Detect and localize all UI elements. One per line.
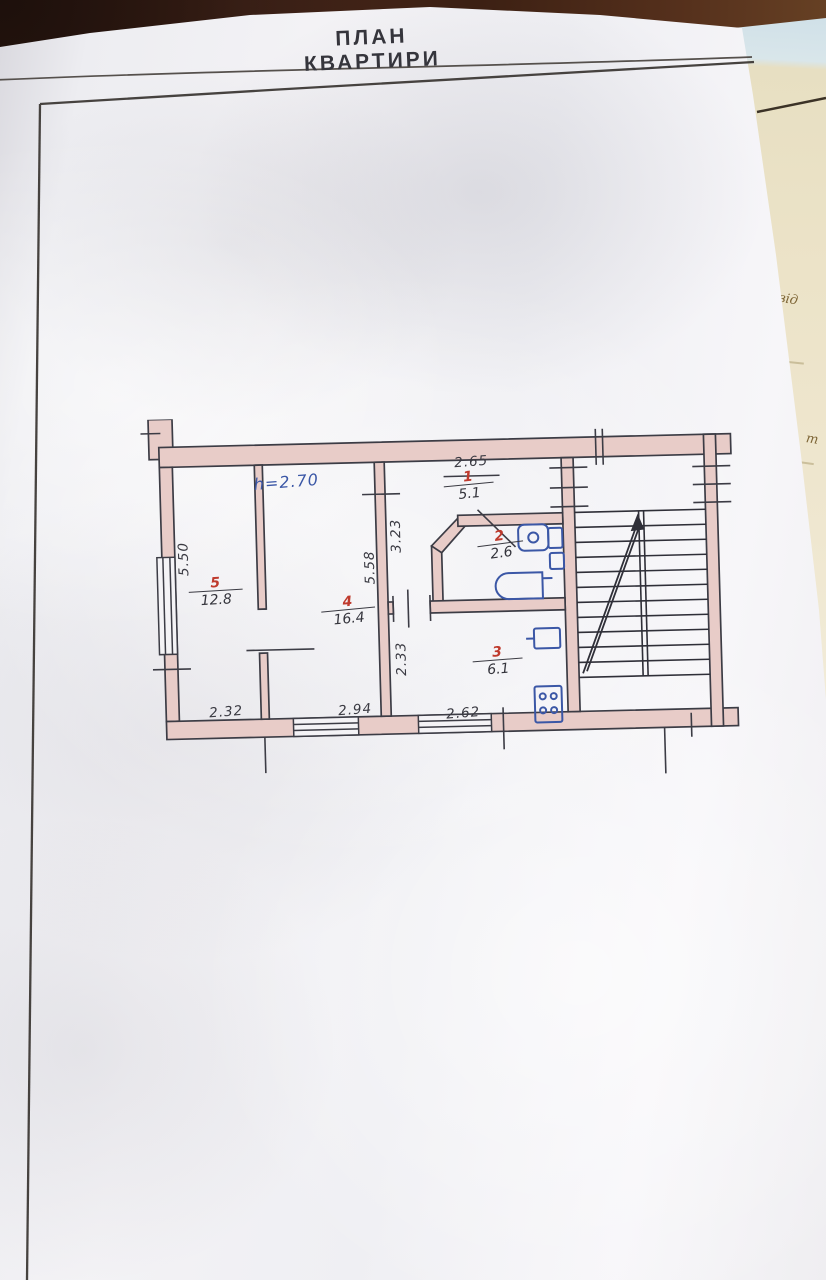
toilet-tank-fixture bbox=[550, 553, 564, 569]
tick-kitchen-door-mid bbox=[408, 590, 409, 628]
bathroom-left-wall bbox=[432, 546, 444, 603]
stove-burner-icon bbox=[540, 693, 546, 699]
stove-burner-icon bbox=[551, 707, 557, 713]
wall-room5-room4-lower bbox=[260, 653, 270, 719]
left-window bbox=[157, 557, 178, 654]
room-4-label: 4 16.4 bbox=[320, 593, 377, 631]
page-title: ПЛАН КВАРТИРИ bbox=[261, 21, 483, 78]
room-5-label: 5 12.8 bbox=[188, 575, 244, 611]
dim-kitchen-depth: 2.33 bbox=[393, 629, 411, 689]
tick-top-wall bbox=[602, 429, 603, 465]
tick-right-wall bbox=[693, 484, 731, 485]
tick-right-wall bbox=[693, 502, 731, 503]
dim-room4-depth: 5.58 bbox=[361, 537, 379, 597]
tick-room5-door bbox=[246, 649, 314, 651]
tick-kitchen-door bbox=[430, 595, 431, 621]
bathtub-fixture bbox=[495, 572, 543, 599]
room-1-label: 1 5.1 bbox=[442, 468, 495, 506]
tick-entry-wall bbox=[550, 506, 588, 507]
tick-bottom-wall bbox=[691, 713, 692, 737]
document-frame-left bbox=[27, 104, 40, 1280]
room-2-label: 2 2.6 bbox=[476, 526, 526, 565]
tick-top-wall bbox=[595, 429, 596, 465]
bathroom-top-wall bbox=[458, 513, 563, 527]
room-5-area: 12.8 bbox=[189, 589, 244, 611]
room-3-label: 3 6.1 bbox=[472, 644, 524, 681]
wall-hall-stairwell bbox=[561, 457, 580, 711]
dim-left-side: 5.50 bbox=[175, 529, 193, 589]
stove-burner-icon bbox=[551, 693, 557, 699]
dim-hall-depth: 3.23 bbox=[387, 506, 405, 566]
kitchen-top-wall bbox=[430, 598, 565, 613]
tick-entry-wall bbox=[550, 487, 588, 488]
tick-left-wall bbox=[153, 669, 191, 670]
stairwell-right-wall bbox=[703, 434, 723, 726]
sink-drain-icon bbox=[528, 532, 538, 542]
cistern-fixture bbox=[548, 528, 563, 548]
photo-of-floor-plan-document: { "page": { "title": "ПЛАН КВАРТИРИ" }, … bbox=[0, 0, 826, 1280]
room-3-area: 6.1 bbox=[473, 658, 524, 681]
floor-plan: h=2.70 2.65 1 5.1 2 2.6 3 6.1 4 16.4 5 1… bbox=[140, 405, 750, 800]
stair-direction-arrow bbox=[579, 516, 647, 674]
stove-burner-icon bbox=[540, 707, 546, 713]
stairwell bbox=[575, 509, 711, 677]
tick-right-wall bbox=[692, 466, 730, 467]
tick-below-stairs bbox=[665, 727, 666, 773]
tick-entry-wall bbox=[549, 467, 587, 468]
tick-room4-wall bbox=[362, 494, 400, 495]
kitchen-sink-fixture bbox=[534, 628, 561, 649]
beige-page-rule bbox=[757, 98, 826, 112]
stair-divider bbox=[644, 511, 649, 676]
stair-divider bbox=[639, 511, 644, 676]
tick-below-room5 bbox=[265, 737, 266, 773]
tick-kitchen-door bbox=[393, 596, 394, 622]
